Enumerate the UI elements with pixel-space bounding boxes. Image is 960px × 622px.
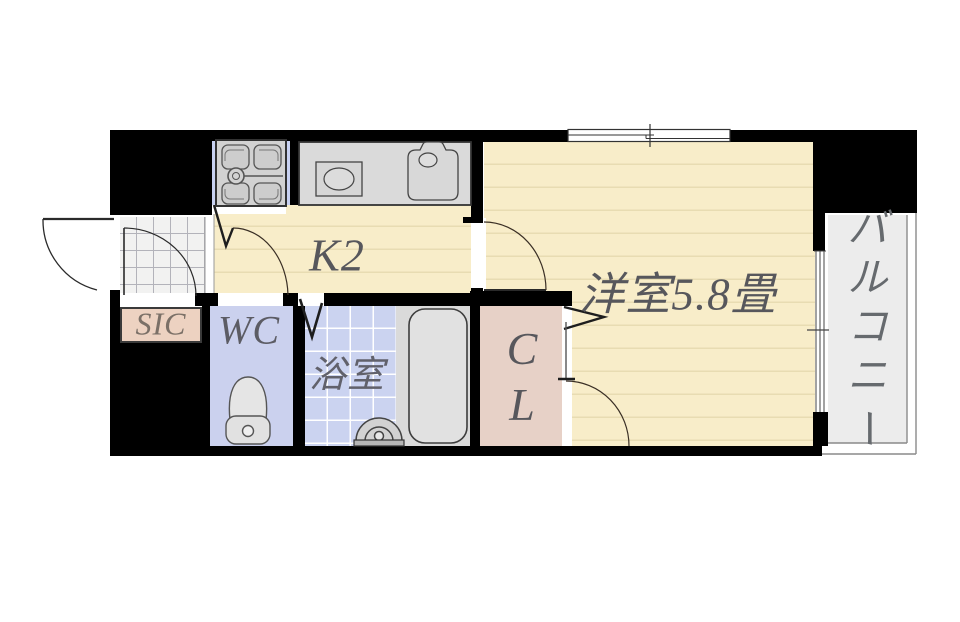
closet-door-icon (558, 307, 629, 446)
label-kitchen: K2 (309, 229, 365, 282)
label-closet: C L (482, 310, 562, 444)
label-toilet: WC (218, 307, 280, 354)
label-shoe-closet: SIC (136, 306, 187, 343)
toilet-icon (226, 377, 270, 444)
label-closet-l: L (509, 377, 535, 433)
label-balcony: バ ル コ ニ ー (840, 204, 895, 449)
label-bathroom: 浴室 (309, 344, 385, 398)
label-closet-c: C (507, 321, 538, 377)
entrance-door-icon (43, 219, 114, 290)
label-western-room: 洋室5.8畳 (579, 258, 776, 323)
balcony-window-icon (807, 251, 829, 412)
western-room-door-icon (484, 222, 546, 290)
bathtub-icon (409, 309, 467, 443)
floorplan-canvas: K2 洋室5.8畳 WC 浴室 SIC C L バ ル コ ニ ー (0, 0, 960, 622)
kitchen-counter-icon (299, 142, 471, 205)
stove-icon (212, 140, 290, 206)
hall-door-icon (124, 228, 196, 296)
kitchen-door-icon (214, 205, 288, 295)
window-top-icon (568, 124, 730, 147)
genkan-step-lines (205, 214, 214, 293)
bathroom-door-icon (300, 299, 322, 337)
water-heater-icon (354, 418, 404, 446)
